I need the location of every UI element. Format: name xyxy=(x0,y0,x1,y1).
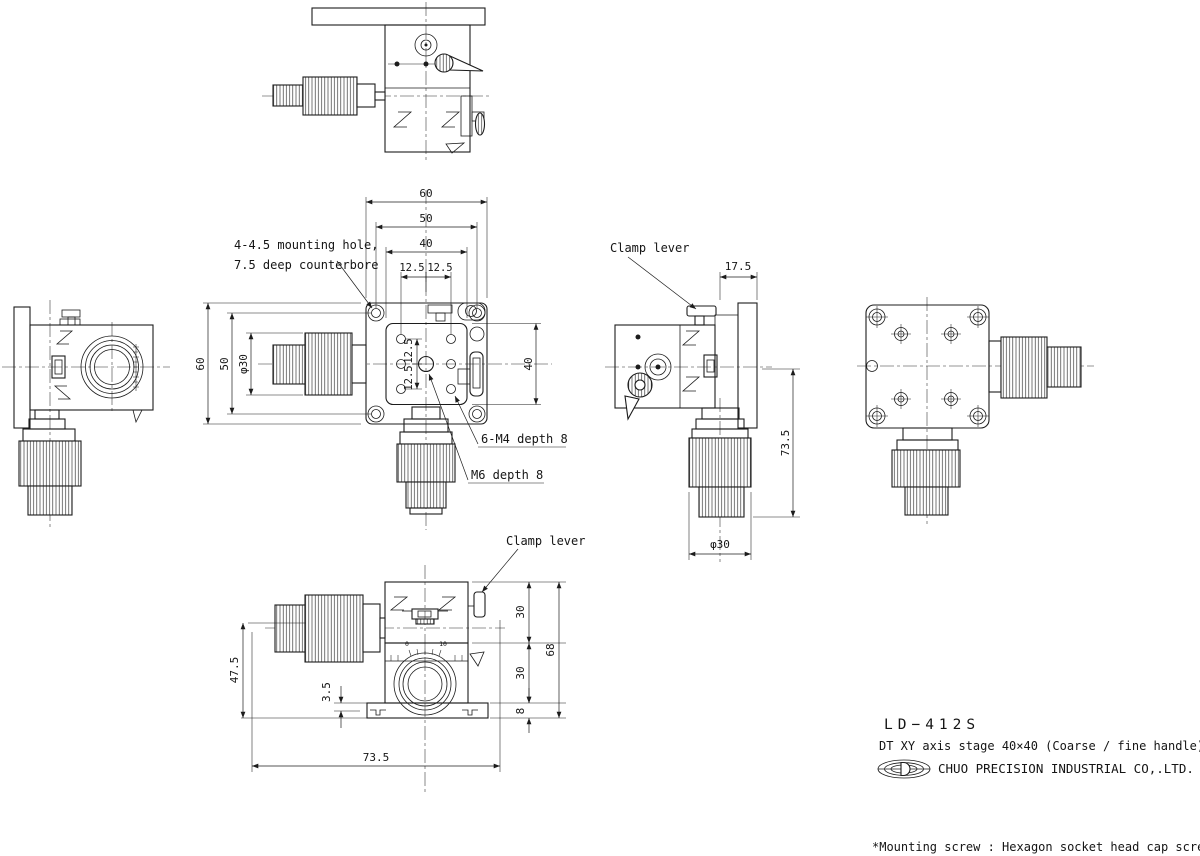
coarse-fine-knob-top xyxy=(273,77,385,115)
dim-pitch-125-right: 12.5 xyxy=(427,262,452,274)
dim-base-8: 8 xyxy=(514,708,527,715)
clamp-lever-callout-front: Clamp lever xyxy=(482,534,585,592)
dim-width-735: 73.5 xyxy=(363,751,390,764)
mounting-hole-note: 4-4.5 mounting hole, 7.5 deep counterbor… xyxy=(234,238,379,308)
dim-30-lower: 30 xyxy=(514,666,527,679)
footnote: *Mounting screw : Hexagon socket head ca… xyxy=(872,840,1200,854)
mounting-hole-note-line1: 4-4.5 mounting hole, xyxy=(234,238,379,252)
clamp-lever-front-view xyxy=(468,592,485,617)
dim-30-upper: 30 xyxy=(514,605,527,618)
dim-knob-dia-30: φ30 xyxy=(710,538,730,551)
dim-knob-475: 47.5 xyxy=(228,657,241,684)
clamp-lever-label-front: Clamp lever xyxy=(506,534,585,548)
clamp-parts-plan xyxy=(428,303,485,396)
t-slot-right xyxy=(462,710,478,715)
dim-735-side: 73.5 xyxy=(753,369,800,517)
dim-height-40: 40 xyxy=(522,357,535,370)
dim-pitch-v-bottom: 12.5 xyxy=(403,365,415,390)
view-side: 17.5 73.5 φ30 Clamp lever xyxy=(605,241,800,562)
dim-width-40: 40 xyxy=(419,237,432,250)
clamp-lever-side-view xyxy=(687,306,716,325)
company-name: CHUO PRECISION INDUSTRIAL CO,.LTD. xyxy=(938,761,1194,776)
view-plan: 60 50 40 12.5 12.5 60 50 φ30 40 xyxy=(194,187,568,530)
title-block: LD−412S DT XY axis stage 40×40 (Coarse /… xyxy=(878,717,1200,778)
x-axis-knob-plan xyxy=(273,333,366,395)
m6-note: M6 depth 8 xyxy=(471,468,543,482)
bottom-counterbore-holes xyxy=(866,306,989,427)
dim-pitch-v-top: 12.5 xyxy=(403,338,415,363)
view-top xyxy=(262,2,492,162)
product-description: DT XY axis stage 40×40 (Coarse / fine ha… xyxy=(879,739,1200,753)
dim-offset-175: 17.5 xyxy=(725,260,752,273)
technical-drawing: 60 50 40 12.5 12.5 60 50 φ30 40 xyxy=(0,0,1200,856)
x-axis-knob-back-view xyxy=(989,337,1081,398)
x-axis-knob-front-view xyxy=(275,595,385,662)
dial-front: 0 10 xyxy=(385,640,468,715)
clamp-lever-callout-side: Clamp lever xyxy=(610,241,696,309)
clamp-lever-left-view xyxy=(60,310,80,325)
view-front: 0 10 30 30 xyxy=(228,534,585,792)
clamp-lever-label-side: Clamp lever xyxy=(610,241,689,255)
m4-note: 6-M4 depth 8 xyxy=(481,432,568,446)
bottom-screw-holes xyxy=(891,324,961,409)
dim-inner-pitch: 12.5 12.5 xyxy=(403,338,422,390)
view-left xyxy=(2,300,170,528)
dim-175: 17.5 xyxy=(720,260,757,300)
dim-height-60: 60 xyxy=(194,357,207,370)
dim-height-50: 50 xyxy=(218,357,231,370)
dim-width-50: 50 xyxy=(419,212,432,225)
dial-scale-0: 0 xyxy=(405,640,409,648)
t-slot-left xyxy=(370,710,386,715)
company-logo xyxy=(878,760,930,778)
view-back xyxy=(857,297,1094,524)
dim-width-60: 60 xyxy=(419,187,432,200)
clamp-screw-top xyxy=(461,96,485,136)
dim-total-68: 68 xyxy=(544,643,557,656)
dim-chain-front-right: 30 30 8 68 xyxy=(472,582,566,733)
mounting-hole-note-line2: 7.5 deep counterbore xyxy=(234,258,379,272)
dim-height-735: 73.5 xyxy=(779,430,792,457)
drawing-sheet: 60 50 40 12.5 12.5 60 50 φ30 40 xyxy=(0,0,1200,856)
y-axis-knob-back-view xyxy=(892,428,960,515)
dim-35: 3.5 xyxy=(320,682,367,728)
dim-knob-dia-plan: φ30 xyxy=(237,354,250,374)
dim-gap-35: 3.5 xyxy=(320,682,333,702)
dim-pitch-125-left: 12.5 xyxy=(399,262,424,274)
product-code: LD−412S xyxy=(884,717,980,733)
dial-scale-10: 10 xyxy=(439,640,447,648)
